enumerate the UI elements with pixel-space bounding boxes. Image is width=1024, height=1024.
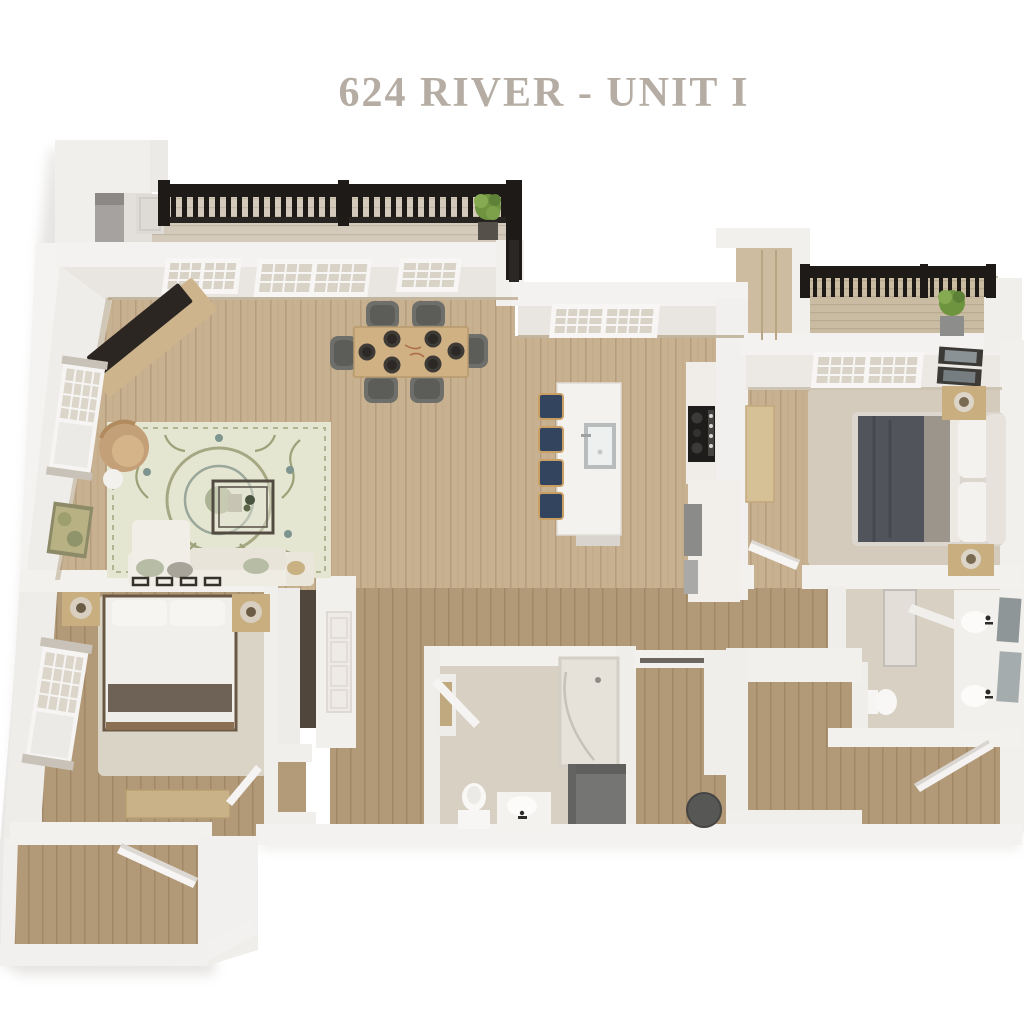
svg-text:624 RIVER - UNIT I: 624 RIVER - UNIT I — [339, 70, 750, 116]
